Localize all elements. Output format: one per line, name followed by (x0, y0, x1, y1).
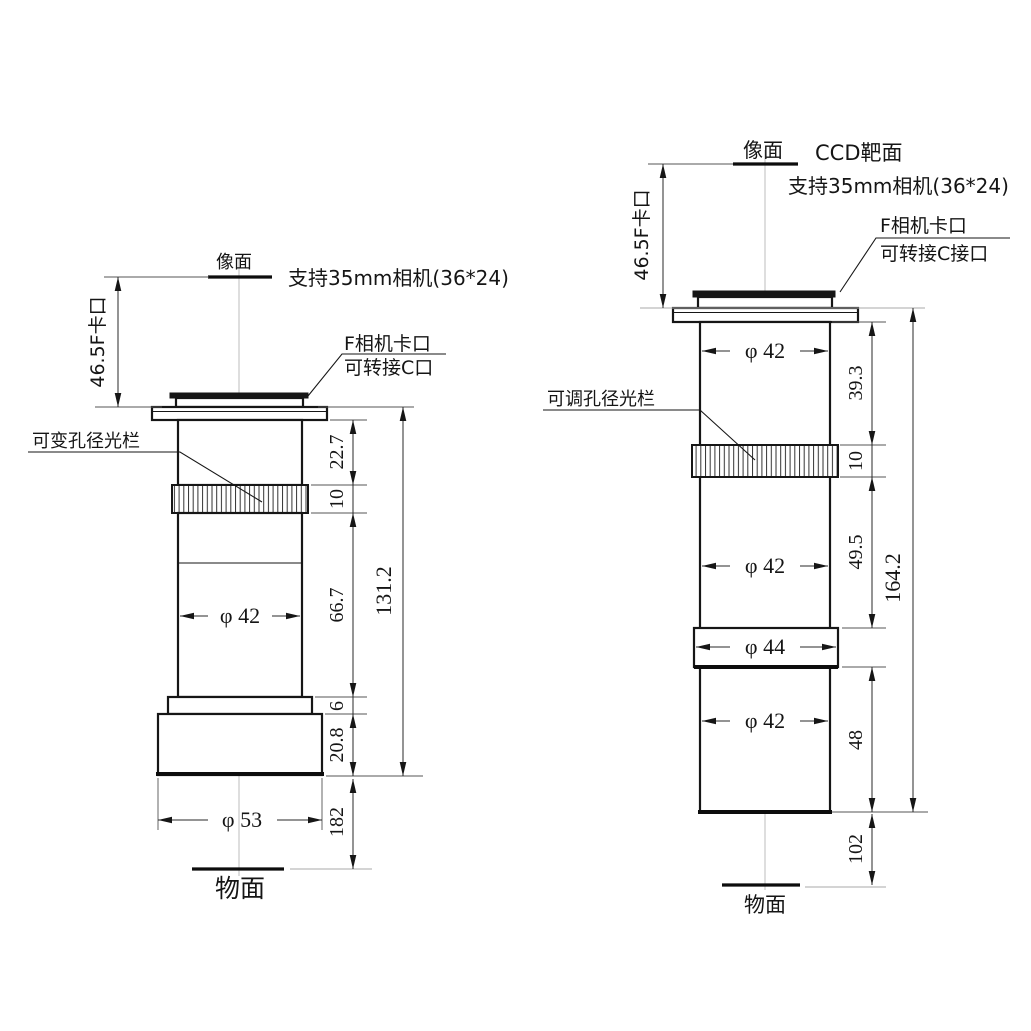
right-dim-39-3: 39.3 (845, 366, 867, 401)
right-dia-top: φ 42 (745, 338, 785, 363)
right-ccd-label: CCD靶面 (815, 141, 903, 165)
right-dim-164-2: 164.2 (880, 553, 905, 603)
right-dia-bottom: φ 42 (745, 708, 785, 733)
right-camera-note: 支持35mm相机(36*24) (788, 174, 1009, 198)
right-mount-note-1: F相机卡口 (880, 215, 967, 237)
right-aperture-label: 可调孔径光栏 (547, 389, 655, 410)
right-dim-49-5: 49.5 (845, 535, 867, 570)
right-image-plane-label: 像面 (743, 138, 783, 162)
left-dia-base: φ 53 (222, 807, 262, 832)
left-dim-182: 182 (326, 807, 348, 837)
left-flange-label: 46.5F卡口 (87, 296, 109, 387)
right-dia-mid: φ 42 (745, 553, 785, 578)
left-dim-66-7: 66.7 (326, 588, 348, 623)
right-aperture-ring (692, 445, 838, 477)
left-dim-20-8: 20.8 (326, 728, 348, 763)
left-mount-note-1: F相机卡口 (344, 333, 431, 355)
left-lens-body (152, 393, 327, 775)
left-dim-131-2: 131.2 (371, 566, 396, 616)
left-aperture-label: 可变孔径光栏 (32, 431, 140, 452)
right-lens-body (673, 291, 858, 812)
lens-technical-drawing: 像面 支持35mm相机(36*24) 46.5F卡口 F相机卡口 可转接C口 可… (0, 0, 1031, 1031)
right-dim-102: 102 (845, 834, 867, 864)
right-flange-label: 46.5F卡口 (631, 189, 653, 280)
right-dim-10: 10 (845, 451, 867, 471)
left-dim-22-7: 22.7 (326, 435, 348, 470)
left-camera-note: 支持35mm相机(36*24) (288, 266, 509, 290)
left-mount-note-2: 可转接C口 (344, 357, 433, 379)
left-dim-10: 10 (326, 489, 348, 509)
left-object-plane-label: 物面 (215, 874, 265, 903)
left-image-plane-label: 像面 (216, 252, 252, 273)
left-dia-barrel: φ 42 (220, 603, 260, 628)
right-dia-ring: φ 44 (745, 634, 785, 659)
left-dim-6: 6 (326, 701, 348, 711)
right-dim-48: 48 (845, 730, 867, 750)
right-object-plane-label: 物面 (744, 893, 786, 917)
right-mount-note-2: 可转接C接口 (880, 243, 988, 265)
